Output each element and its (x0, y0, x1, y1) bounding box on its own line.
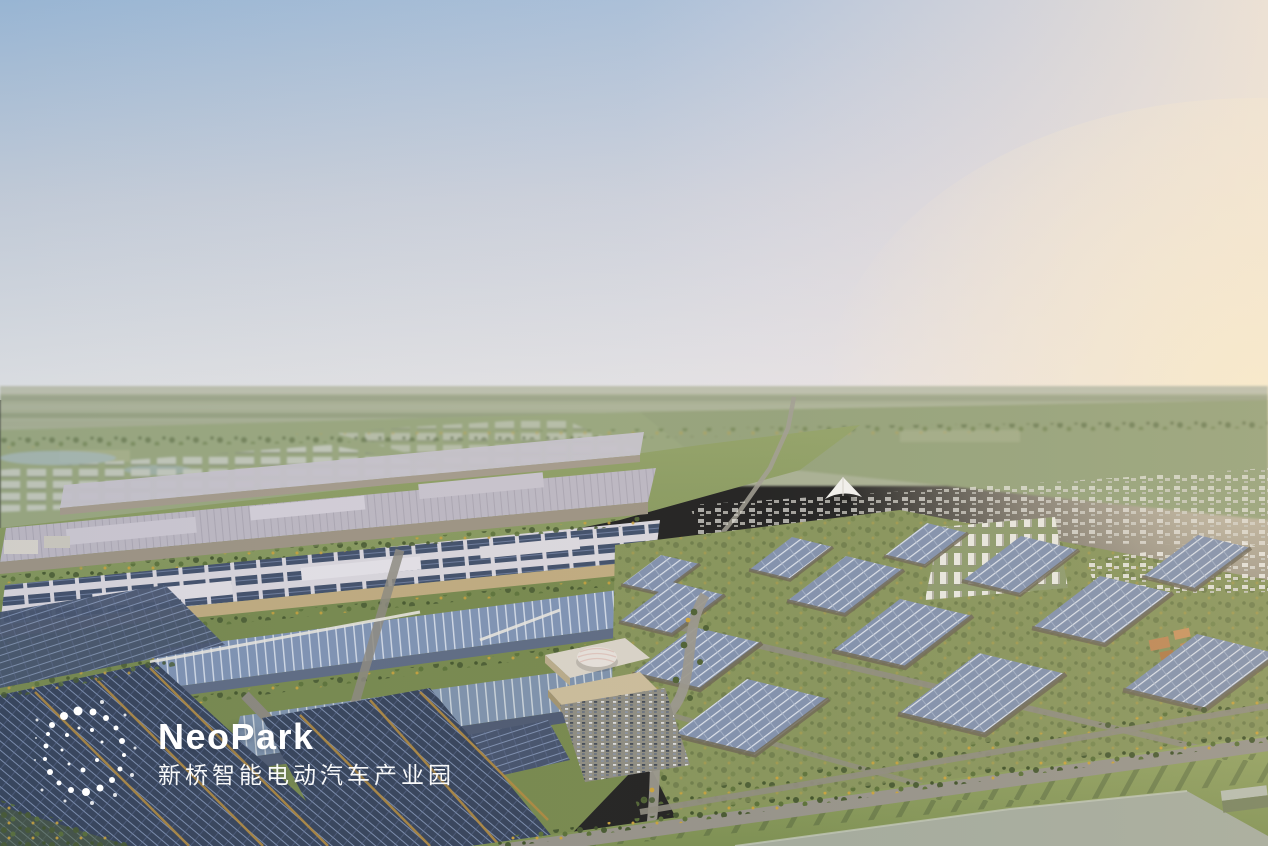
logo-wordmark: NeoPark (158, 719, 455, 755)
neopark-logo: NeoPark 新桥智能电动汽车产业园 (34, 700, 455, 806)
logo-dots-mark (34, 700, 138, 806)
aerial-rendering: NeoPark 新桥智能电动汽车产业园 (0, 0, 1268, 846)
logo-subtitle: 新桥智能电动汽车产业园 (158, 764, 455, 787)
